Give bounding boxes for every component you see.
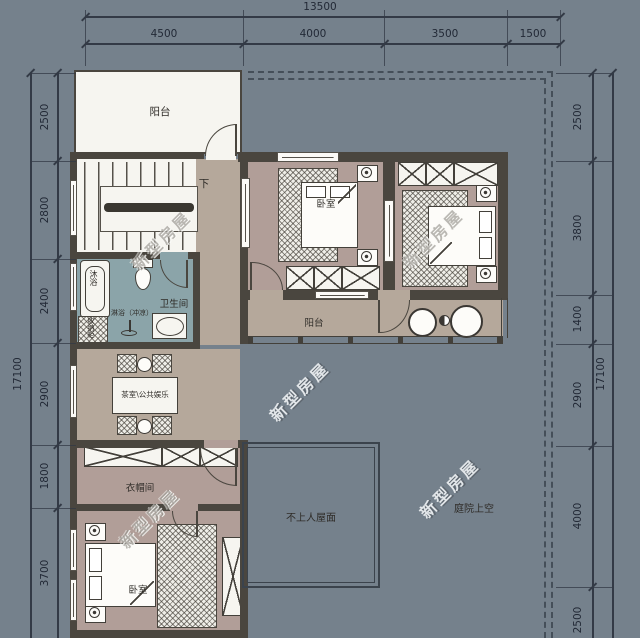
chair <box>117 354 137 373</box>
dim-top-seg: 1500 <box>503 28 563 40</box>
dim-top-total: 13500 <box>250 1 390 13</box>
dim-extension <box>30 161 76 162</box>
railing-post <box>448 336 453 344</box>
planter-icon <box>408 308 437 337</box>
balcony-mid-label: 阳台 <box>294 315 334 329</box>
dim-left-seg: 2500 <box>39 87 51 147</box>
nightstand <box>85 605 106 623</box>
wardrobe-unit <box>342 266 380 290</box>
bath-label: 沐浴 <box>88 270 99 286</box>
floor-plan: 阳台 下 卧室 卫生间 沐浴 淋浴（冲凉） 收纳柜 茶室\公共娱乐 阳台 衣帽间… <box>0 0 640 638</box>
dim-extension <box>556 161 612 162</box>
shower-base-icon <box>121 330 137 336</box>
window <box>315 291 369 299</box>
wall-segment <box>70 630 248 638</box>
planter-icon <box>450 305 483 338</box>
dim-right-seg: 4000 <box>572 486 584 546</box>
watermark: 新型房屋 <box>256 348 339 431</box>
railing-post <box>248 336 253 344</box>
dim-extension <box>507 10 508 66</box>
chair <box>117 416 137 435</box>
door-leaf <box>235 448 237 486</box>
window <box>70 365 77 418</box>
nightstand <box>357 249 378 266</box>
door-opening <box>378 290 410 300</box>
railing-post <box>398 336 403 344</box>
door-opening <box>204 440 238 448</box>
window <box>70 529 77 571</box>
wall-segment <box>198 504 248 511</box>
railing <box>501 298 508 338</box>
lamp-icon <box>480 268 491 279</box>
nightstand <box>357 165 378 182</box>
dim-extension <box>30 343 76 344</box>
window <box>70 579 77 621</box>
wardrobe-unit <box>84 446 162 467</box>
bedroom-bottom-label: 卧室 <box>118 582 158 596</box>
dim-right-seg: 3800 <box>572 198 584 258</box>
bedroom-mid-label: 卧室 <box>306 196 346 210</box>
wardrobe-unit <box>286 266 314 290</box>
dim-left-seg: 2900 <box>39 364 51 424</box>
stone-icon <box>439 315 450 326</box>
chair <box>152 416 172 435</box>
wardrobe-unit <box>398 162 426 186</box>
railing <box>248 336 503 344</box>
lamp-icon <box>89 607 100 618</box>
dashed-boundary-top-outer <box>248 71 553 73</box>
dim-line <box>85 16 560 18</box>
dim-extension <box>243 10 244 66</box>
dim-extension <box>85 10 86 66</box>
shower-label: 淋浴（冲凉） <box>100 308 164 318</box>
wall-segment <box>498 152 508 300</box>
nightstand <box>476 266 497 283</box>
dim-top-seg: 3500 <box>415 28 475 40</box>
dim-line <box>57 72 59 638</box>
dim-line <box>30 72 32 638</box>
dim-right-total: 17100 <box>595 344 607 404</box>
door-opening <box>160 252 188 259</box>
dim-right-seg: 1400 <box>572 289 584 349</box>
dim-extension <box>560 10 561 66</box>
dim-left-seg: 2800 <box>39 180 51 240</box>
nightstand <box>85 523 106 541</box>
dim-line <box>612 72 614 638</box>
dashed-boundary-right-outer <box>551 71 553 638</box>
wall-segment <box>70 342 200 349</box>
dim-left-seg: 2400 <box>39 271 51 331</box>
dim-left-seg: 3700 <box>39 543 51 603</box>
dim-right-seg: 2500 <box>572 590 584 638</box>
wardrobe-unit <box>162 446 200 467</box>
lamp-icon <box>89 525 100 536</box>
dim-right-seg: 2900 <box>572 365 584 425</box>
dim-right-seg: 2500 <box>572 87 584 147</box>
door-opening <box>250 290 283 300</box>
door-leaf <box>378 300 380 333</box>
dashed-boundary-right-inner <box>544 78 546 638</box>
dim-left-seg: 1800 <box>39 446 51 506</box>
dim-line <box>85 43 560 45</box>
dashed-boundary-top-inner <box>248 78 546 80</box>
bed <box>301 182 358 248</box>
lamp-icon <box>480 187 491 198</box>
balcony-top-label: 阳台 <box>140 104 180 119</box>
dim-left-total: 17100 <box>12 344 24 404</box>
dim-extension <box>556 73 612 74</box>
dim-extension <box>30 508 76 509</box>
plate-icon <box>137 419 152 434</box>
carpet <box>157 524 217 628</box>
window <box>277 152 339 162</box>
dim-extension <box>556 344 612 345</box>
door-leaf <box>186 260 188 288</box>
dim-extension <box>556 587 612 588</box>
dim-line <box>592 72 594 638</box>
window <box>384 200 394 262</box>
door-leaf <box>196 511 198 537</box>
door-leaf <box>235 124 237 156</box>
wall-segment <box>70 440 204 448</box>
nightstand <box>476 185 497 202</box>
dim-extension <box>556 295 612 296</box>
wall-segment <box>70 152 204 159</box>
door-leaf <box>250 262 252 290</box>
window <box>241 178 250 248</box>
railing-post <box>298 336 303 344</box>
dim-extension <box>30 259 76 260</box>
railing-post <box>348 336 353 344</box>
roof-label: 不上人屋面 <box>264 509 358 524</box>
watermark: 新型房屋 <box>406 445 489 528</box>
lamp-icon <box>361 167 372 178</box>
stairs-down-label: 下 <box>196 176 212 191</box>
plate-icon <box>137 357 152 372</box>
wardrobe-unit <box>454 162 498 186</box>
dim-top-seg: 4500 <box>134 28 194 40</box>
wardrobe-unit <box>314 266 342 290</box>
dim-extension <box>30 73 76 74</box>
dim-extension <box>556 446 612 447</box>
dim-top-seg: 4000 <box>283 28 343 40</box>
window <box>70 263 77 311</box>
chair <box>152 354 172 373</box>
cabinet-label: 收纳柜 <box>86 317 96 338</box>
wardrobe-unit <box>426 162 454 186</box>
dim-extension <box>384 10 385 66</box>
window <box>70 180 77 236</box>
tea-room-label: 茶室\公共娱乐 <box>113 389 177 400</box>
lamp-icon <box>361 251 372 262</box>
dim-extension <box>30 445 76 446</box>
